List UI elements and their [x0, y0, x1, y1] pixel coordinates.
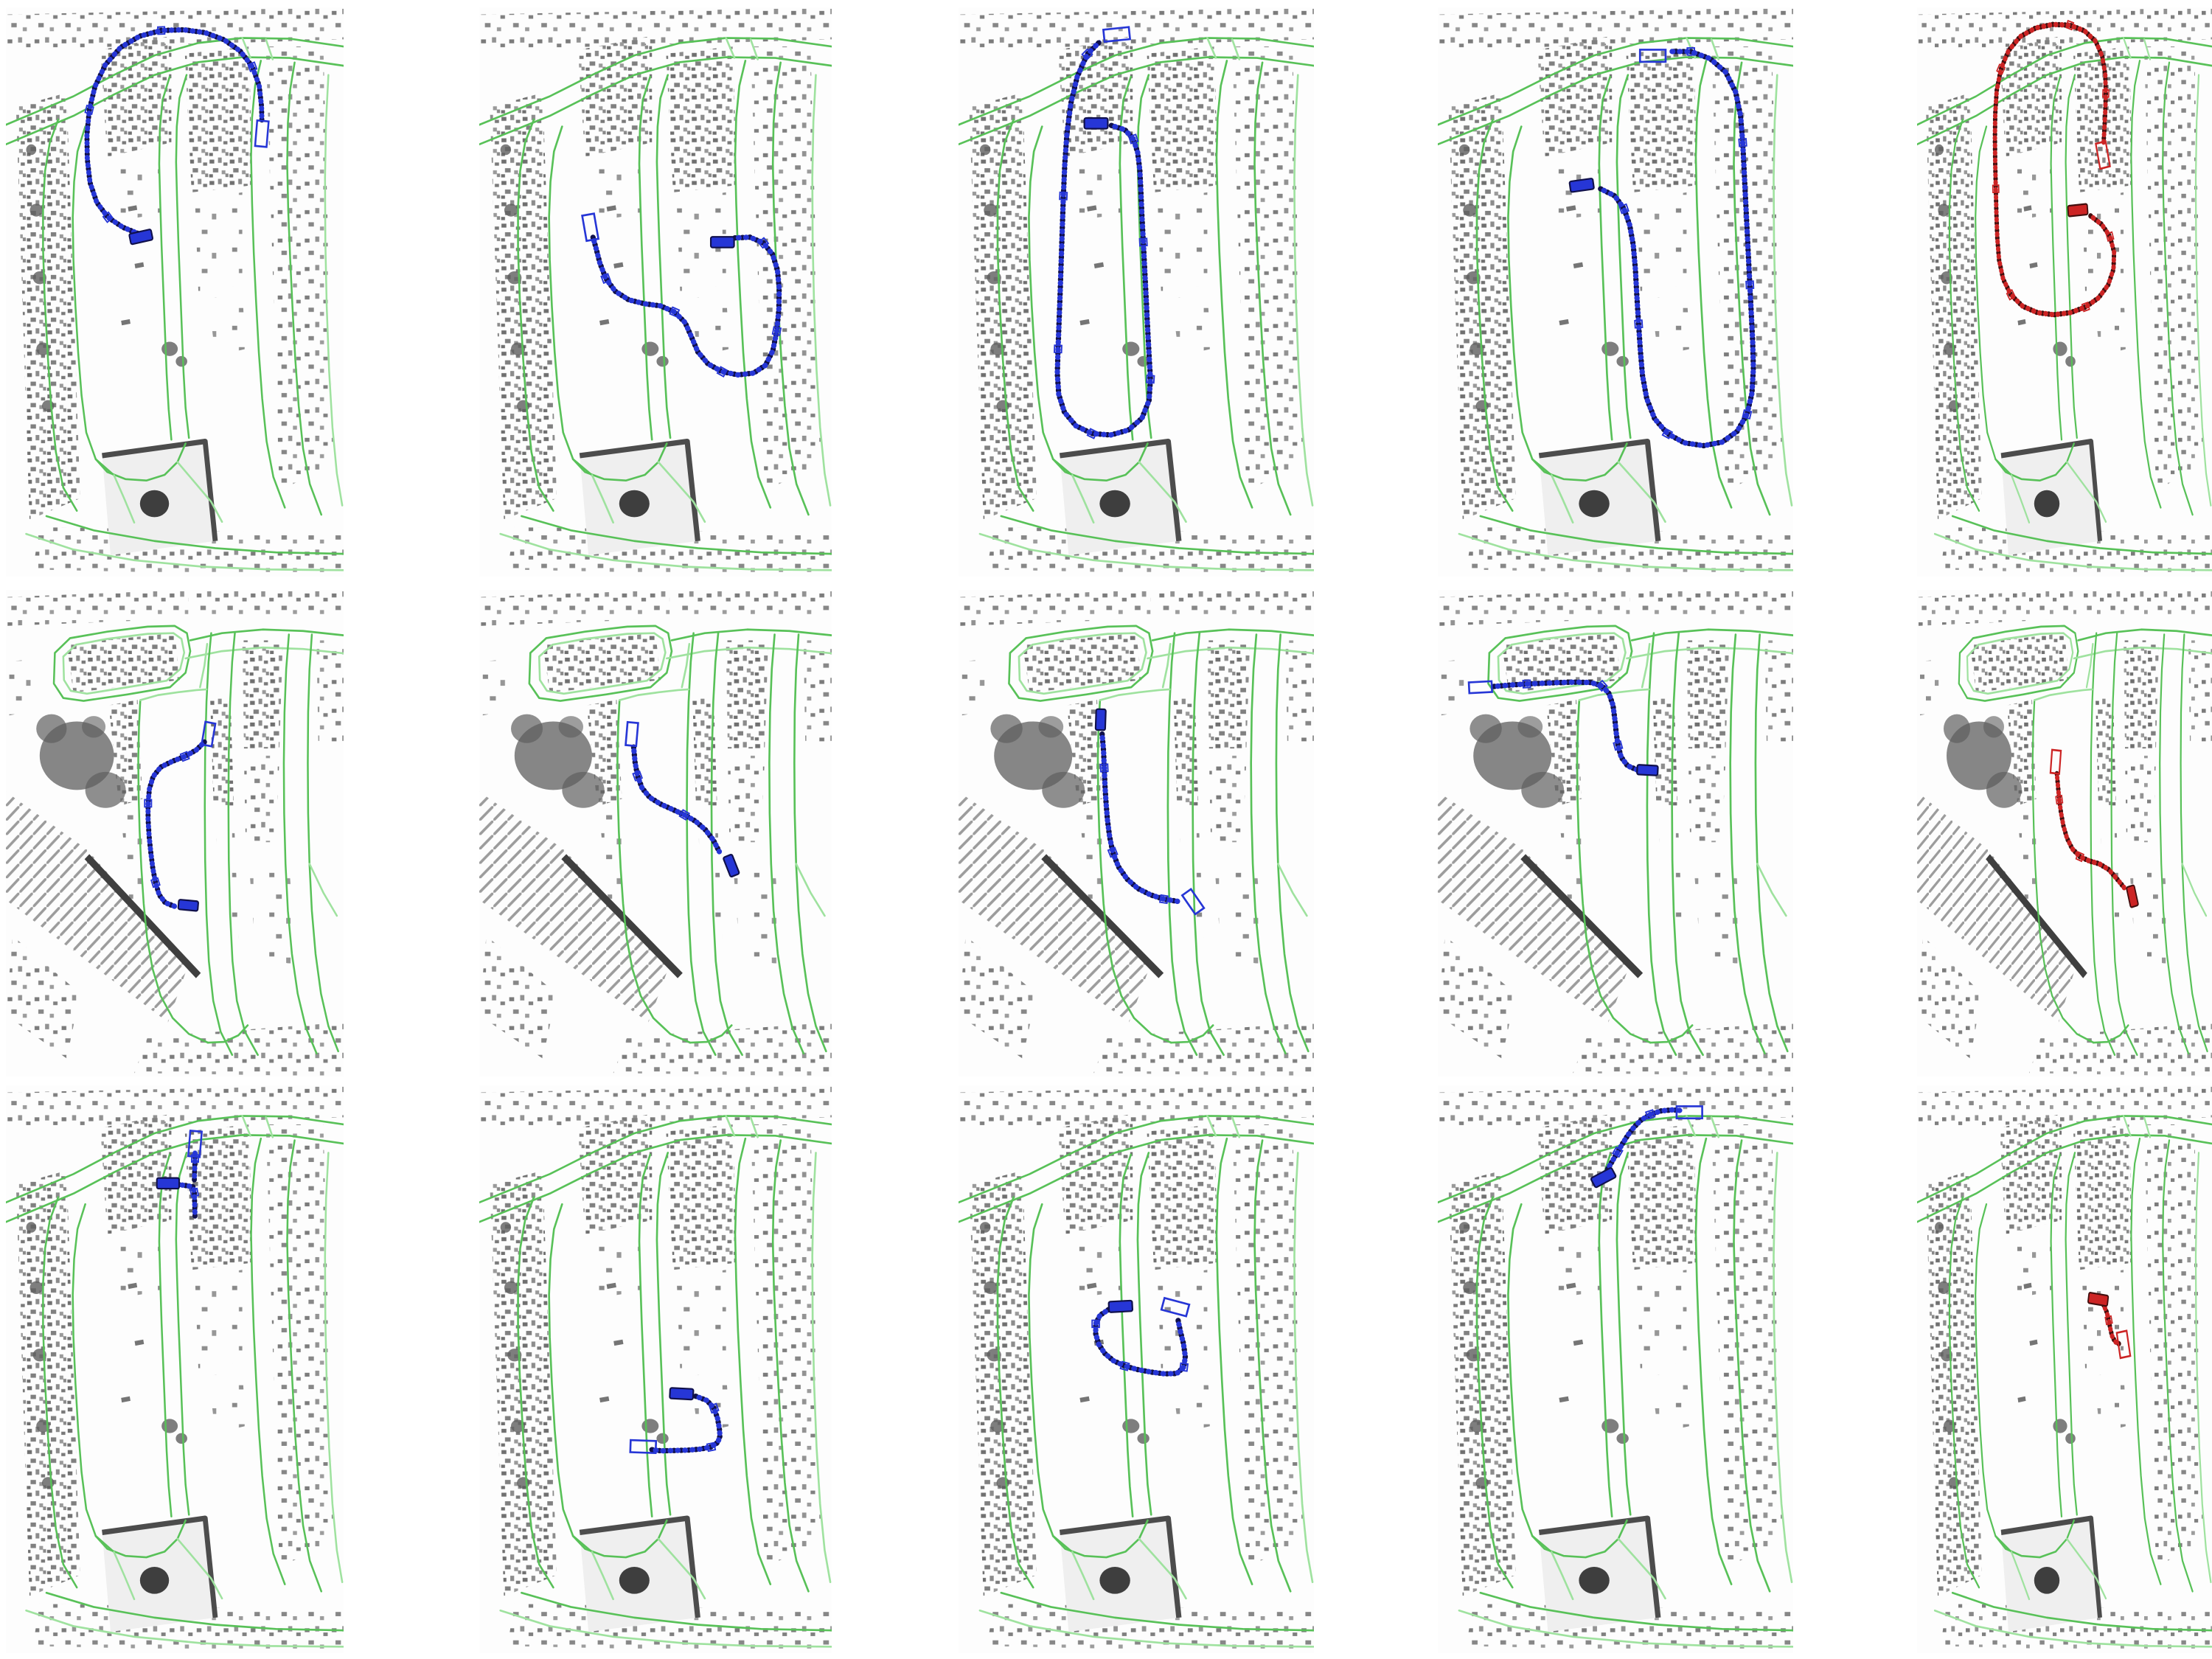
- map-blob: [2034, 490, 2059, 518]
- clutter-region: [209, 292, 246, 356]
- map-canvas: [6, 7, 344, 577]
- parked-car: [135, 262, 145, 268]
- lidar-clutter: [1438, 590, 1793, 1077]
- clutter-region: [1093, 1023, 1314, 1077]
- parked-car: [1573, 262, 1583, 268]
- clutter-region: [1172, 292, 1211, 356]
- clutter-region: [666, 46, 737, 192]
- parked-car: [121, 319, 131, 325]
- lane-line: [1251, 635, 1286, 1054]
- map-blob: [1099, 490, 1130, 518]
- lane-line: [200, 644, 207, 687]
- clutter-region: [479, 936, 557, 1058]
- lane-line: [1508, 127, 1551, 476]
- trajectory-path: [177, 1184, 198, 1216]
- lane-line: [549, 1204, 592, 1552]
- map-blob: [1986, 772, 2022, 808]
- clutter-region: [1438, 1085, 1793, 1128]
- map-blob: [641, 1419, 658, 1433]
- lane-line: [1617, 75, 1630, 438]
- map-blob: [641, 342, 658, 356]
- clutter-region: [185, 46, 253, 192]
- trajectory-path: [1101, 734, 1178, 904]
- clutter-region: [6, 1085, 344, 1128]
- lane-line: [549, 127, 592, 476]
- map-blob: [1601, 342, 1618, 356]
- clutter-region: [1917, 590, 2076, 626]
- trajectory-panel-r1c2: [479, 7, 832, 577]
- trajectory-panel-r2c1: [6, 590, 344, 1077]
- clutter-region: [6, 936, 80, 1058]
- map-blob: [1935, 1222, 1944, 1232]
- vehicle-marker: [711, 237, 734, 247]
- clutter-region: [2073, 1124, 2132, 1270]
- map-canvas: [959, 1085, 1314, 1653]
- clutter-region: [1626, 1124, 1697, 1270]
- map-blob: [30, 1281, 43, 1294]
- clutter-region: [1172, 1369, 1211, 1433]
- clutter-region: [195, 1270, 242, 1369]
- clutter-region: [1068, 1234, 1121, 1298]
- clutter-region: [479, 7, 832, 50]
- clutter-region: [1688, 756, 1726, 842]
- clutter-region: [959, 936, 1037, 1058]
- clutter-region: [134, 1023, 344, 1077]
- clutter-region: [1207, 640, 1250, 748]
- lane-line: [1731, 635, 1765, 1054]
- trajectory-panel-r3c1: [6, 1085, 344, 1653]
- clutter-region: [804, 640, 832, 741]
- vehicle-marker: [669, 1388, 693, 1399]
- map-blob: [175, 356, 187, 366]
- vehicle-marker: [178, 900, 199, 911]
- map-blob: [1463, 1281, 1476, 1294]
- map-blob: [1521, 772, 1564, 808]
- clutter-region: [1285, 640, 1314, 741]
- clutter-region: [1686, 640, 1729, 748]
- goal-box: [625, 722, 638, 745]
- trajectory-panel-r2c2: [479, 590, 832, 1077]
- clutter-region: [2082, 590, 2212, 619]
- lane-line: [2066, 75, 2077, 438]
- parked-car: [599, 1397, 609, 1402]
- clutter-region: [243, 640, 283, 748]
- map-blob: [2053, 1419, 2067, 1433]
- map-blob: [511, 714, 543, 743]
- map-canvas: [6, 1085, 344, 1653]
- goal-box: [2051, 750, 2061, 773]
- clutter-region: [726, 640, 768, 748]
- lane-line: [73, 1204, 114, 1552]
- map-blob: [1122, 1419, 1139, 1433]
- trajectory-panel-r2c4: [1438, 590, 1793, 1077]
- goal-box: [255, 120, 268, 147]
- map-canvas: [1438, 590, 1793, 1077]
- lane-lines: [1959, 626, 2212, 1055]
- map-blob: [26, 1222, 36, 1232]
- parked-car: [613, 262, 623, 268]
- map-canvas: [1438, 1085, 1793, 1653]
- trajectory-line: [1102, 734, 1178, 902]
- lane-line: [310, 864, 337, 916]
- lane-line: [284, 635, 316, 1054]
- lane-line: [1757, 864, 1786, 916]
- clutter-region: [2082, 192, 2124, 292]
- map-blob: [1099, 1567, 1130, 1594]
- lane-line: [1278, 864, 1307, 916]
- map-blob: [1983, 716, 2004, 737]
- parked-car: [599, 319, 609, 325]
- trajectory-panel-r1c5: [1917, 7, 2212, 577]
- map-blob: [82, 716, 105, 737]
- trajectory-panel-r3c3: [959, 1085, 1314, 1653]
- map-blob: [1938, 204, 1949, 216]
- map-blob: [656, 356, 668, 366]
- clutter-region: [479, 658, 518, 716]
- clutter-region: [1438, 7, 1793, 50]
- map-blob: [1579, 490, 1609, 518]
- clutter-region: [195, 590, 344, 619]
- lane-line: [190, 630, 344, 641]
- clutter-region: [111, 1234, 161, 1298]
- clutter-region: [677, 590, 832, 619]
- lane-lines: [529, 626, 832, 1055]
- trajectory-panel-r3c5: [1917, 1085, 2212, 1653]
- map-blob: [2065, 356, 2076, 366]
- vehicle-marker: [723, 854, 740, 877]
- clutter-region: [543, 633, 661, 693]
- map-blob: [1042, 772, 1085, 808]
- clutter-region: [1764, 640, 1793, 741]
- parked-car: [1573, 1340, 1583, 1346]
- lidar-clutter: [959, 590, 1314, 1077]
- clutter-region: [1626, 46, 1697, 192]
- vehicle-marker: [2067, 204, 2087, 216]
- map-blob: [656, 1433, 668, 1444]
- lane-line: [1138, 1152, 1151, 1514]
- lane-line: [1975, 1204, 2011, 1552]
- clutter-region: [1214, 864, 1264, 965]
- clutter-region: [1068, 157, 1121, 221]
- clutter-region: [316, 640, 344, 741]
- lane-line: [73, 127, 114, 476]
- clutter-region: [959, 590, 1150, 626]
- parked-car: [1079, 319, 1089, 325]
- clutter-region: [111, 157, 161, 221]
- clutter-region: [2094, 292, 2126, 356]
- map-blob: [161, 342, 178, 356]
- map-blob: [86, 772, 126, 808]
- map-blob: [1935, 145, 1944, 155]
- lane-lines: [1488, 626, 1793, 1055]
- clutter-region: [1209, 756, 1247, 842]
- clutter-region: [1917, 1085, 2212, 1128]
- clutter-region: [1438, 658, 1477, 716]
- clutter-region: [1573, 1023, 1793, 1077]
- lane-line: [1632, 630, 1793, 641]
- clutter-region: [2094, 1369, 2126, 1433]
- clutter-region: [479, 1085, 832, 1128]
- clutter-region: [1438, 590, 1630, 626]
- map-blob: [1038, 716, 1063, 737]
- lane-line: [2160, 635, 2188, 1054]
- clutter-region: [249, 864, 296, 965]
- clutter-region: [959, 7, 1314, 50]
- parked-car: [2017, 319, 2025, 325]
- clutter-region: [2008, 1234, 2053, 1298]
- map-blob: [1137, 1433, 1149, 1444]
- map-blob: [980, 1222, 990, 1232]
- map-blob: [140, 490, 169, 518]
- map-canvas: [959, 590, 1314, 1077]
- clutter-region: [209, 1369, 246, 1433]
- map-canvas: [1438, 7, 1793, 577]
- clutter-region: [1637, 590, 1793, 619]
- map-blob: [504, 204, 518, 216]
- clutter-region: [959, 1085, 1314, 1128]
- clutter-region: [2188, 640, 2212, 741]
- trajectory-panel-r1c1: [6, 7, 344, 577]
- clutter-region: [1917, 658, 1950, 716]
- clutter-region: [588, 157, 641, 221]
- vehicle-marker: [1569, 178, 1594, 192]
- clutter-region: [1179, 813, 1204, 943]
- trajectory-panel-r3c4: [1438, 1085, 1793, 1653]
- lane-line: [1508, 1204, 1551, 1552]
- trajectory-panel-r2c3: [959, 590, 1314, 1077]
- map-canvas: [959, 7, 1314, 577]
- map-blob: [984, 1281, 997, 1294]
- lane-lines: [54, 626, 344, 1055]
- trajectory-panel-r1c3: [959, 7, 1314, 577]
- trajectory-path: [145, 742, 204, 906]
- map-canvas: [479, 590, 832, 1077]
- lane-line: [2066, 1152, 2077, 1514]
- lidar-clutter: [479, 590, 832, 1077]
- clutter-region: [6, 590, 188, 626]
- clutter-region: [733, 864, 782, 965]
- map-blob: [161, 1419, 178, 1433]
- map-blob: [619, 490, 650, 518]
- figure-grid: [0, 0, 2212, 1659]
- map-blob: [980, 145, 990, 155]
- map-blob: [501, 1222, 511, 1232]
- lane-line: [769, 635, 803, 1054]
- clutter-region: [2029, 1023, 2212, 1077]
- clutter-region: [666, 1124, 737, 1270]
- clutter-region: [244, 756, 279, 842]
- map-blob: [2034, 1567, 2059, 1594]
- map-blob: [1579, 1567, 1609, 1594]
- map-blob: [1616, 1433, 1628, 1444]
- lane-line: [796, 864, 825, 916]
- parked-car: [2029, 1340, 2037, 1346]
- clutter-region: [66, 633, 179, 693]
- parked-car: [1079, 1397, 1089, 1402]
- map-canvas: [1917, 7, 2212, 577]
- trajectory-panel-r3c2: [479, 1085, 832, 1653]
- map-blob: [984, 204, 997, 216]
- parked-car: [1559, 1397, 1568, 1402]
- lidar-clutter: [6, 590, 344, 1077]
- clutter-region: [677, 1270, 726, 1369]
- map-canvas: [1917, 1085, 2212, 1653]
- trajectory-panel-r2c5: [1917, 590, 2212, 1077]
- lane-line: [1642, 644, 1649, 687]
- vehicle-marker: [1096, 709, 1106, 731]
- clutter-region: [613, 1023, 832, 1077]
- lane-line: [2087, 644, 2093, 687]
- clutter-region: [2124, 640, 2159, 748]
- trajectory-panel-r1c4: [1438, 7, 1793, 577]
- clutter-region: [1917, 7, 2212, 50]
- lane-line: [657, 1152, 670, 1514]
- map-canvas: [6, 590, 344, 1077]
- vehicle-marker: [1109, 1301, 1133, 1312]
- map-blob: [36, 714, 66, 743]
- map-blob: [1517, 716, 1543, 737]
- lane-line: [1617, 1152, 1630, 1514]
- map-blob: [1459, 1222, 1470, 1232]
- clutter-region: [1637, 192, 1686, 292]
- clutter-region: [1147, 46, 1217, 192]
- clutter-region: [1158, 590, 1314, 619]
- map-canvas: [1917, 590, 2212, 1077]
- parked-car: [121, 1397, 131, 1402]
- map-blob: [1470, 714, 1501, 743]
- trajectory-dots-dark: [1102, 734, 1178, 902]
- clutter-region: [2129, 864, 2171, 965]
- clutter-region: [1438, 936, 1516, 1058]
- clutter-region: [6, 658, 43, 716]
- clutter-region: [2125, 756, 2156, 842]
- clutter-region: [1023, 633, 1141, 693]
- clutter-region: [728, 756, 765, 842]
- parked-car: [2029, 262, 2037, 268]
- lane-lines: [1009, 626, 1314, 1055]
- parked-car: [613, 1340, 623, 1346]
- clutter-region: [2008, 157, 2053, 221]
- map-blob: [30, 204, 43, 216]
- clutter-region: [195, 192, 242, 292]
- lane-line: [672, 630, 832, 641]
- parked-car: [1094, 262, 1104, 268]
- map-blob: [140, 1567, 169, 1594]
- map-blob: [1938, 1281, 1949, 1294]
- map-blob: [504, 1281, 518, 1294]
- clutter-region: [1651, 1369, 1690, 1433]
- map-blob: [175, 1433, 187, 1444]
- lane-line: [2183, 864, 2206, 916]
- lane-line: [176, 75, 189, 438]
- lane-line: [1152, 630, 1314, 641]
- clutter-region: [959, 658, 998, 716]
- clutter-region: [479, 590, 669, 626]
- clutter-region: [2082, 1270, 2124, 1369]
- lane-line: [2078, 630, 2212, 641]
- clutter-region: [1637, 1270, 1686, 1369]
- map-canvas: [479, 1085, 832, 1653]
- trajectory-dots: [1102, 734, 1178, 902]
- map-blob: [559, 716, 583, 737]
- map-canvas: [479, 7, 832, 577]
- map-blob: [2053, 342, 2067, 356]
- lane-line: [657, 75, 670, 438]
- clutter-region: [1917, 936, 1982, 1058]
- clutter-region: [588, 1234, 641, 1298]
- vehicle-marker: [157, 1178, 179, 1189]
- clutter-region: [215, 813, 239, 943]
- map-blob: [1122, 342, 1139, 356]
- map-blob: [1616, 356, 1628, 366]
- clutter-region: [1658, 813, 1683, 943]
- clutter-region: [1147, 1124, 1217, 1270]
- trajectory-dots-dark: [148, 742, 204, 906]
- clutter-region: [1694, 864, 1743, 965]
- clutter-region: [1651, 292, 1690, 356]
- vehicle-marker: [1637, 765, 1658, 776]
- map-blob: [501, 145, 511, 155]
- lane-line: [682, 644, 689, 687]
- map-blob: [1601, 1419, 1618, 1433]
- map-blob: [562, 772, 604, 808]
- parked-car: [1559, 319, 1568, 325]
- vehicle-marker: [2088, 1293, 2109, 1307]
- map-blob: [1459, 145, 1470, 155]
- map-blob: [2065, 1433, 2076, 1444]
- map-blob: [1463, 204, 1476, 216]
- map-blob: [26, 145, 36, 155]
- parked-car: [135, 1340, 145, 1346]
- map-blob: [619, 1567, 650, 1594]
- lane-line: [176, 1152, 189, 1514]
- map-blob: [990, 714, 1022, 743]
- parked-car: [2017, 1397, 2025, 1402]
- clutter-region: [1970, 633, 2069, 693]
- clutter-region: [1158, 192, 1207, 292]
- map-blob: [1944, 714, 1970, 743]
- lane-line: [1163, 644, 1170, 687]
- vehicle-marker: [1085, 118, 1108, 128]
- clutter-region: [1548, 1234, 1601, 1298]
- lane-line: [1029, 1204, 1072, 1552]
